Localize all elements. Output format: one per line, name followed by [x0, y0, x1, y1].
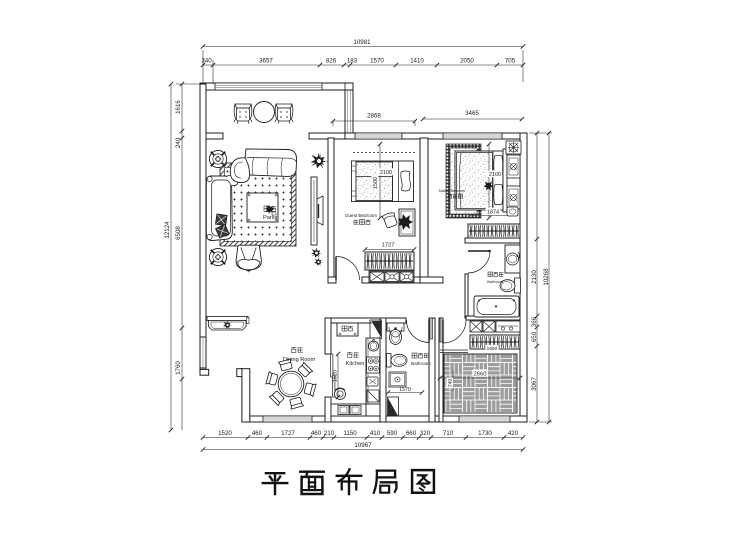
- svg-text:240: 240: [175, 137, 182, 148]
- svg-text:1874: 1874: [487, 210, 499, 216]
- svg-text:650: 650: [531, 331, 538, 342]
- svg-text:10981: 10981: [353, 39, 371, 46]
- svg-text:1500: 1500: [373, 177, 379, 189]
- svg-text:10268: 10268: [543, 268, 550, 286]
- svg-text:420: 420: [508, 430, 519, 437]
- svg-text:1410: 1410: [410, 58, 424, 65]
- svg-text:3067: 3067: [531, 377, 538, 391]
- svg-text:Bathroom: Bathroom: [487, 280, 503, 284]
- svg-text:10967: 10967: [354, 442, 372, 449]
- svg-text:3465: 3465: [465, 110, 479, 117]
- svg-text:Parlor: Parlor: [263, 215, 278, 221]
- svg-text:1660: 1660: [487, 346, 498, 352]
- svg-text:2050: 2050: [460, 58, 474, 65]
- svg-text:12124: 12124: [164, 221, 171, 239]
- svg-text:2868: 2868: [367, 113, 381, 120]
- svg-text:1760: 1760: [175, 361, 182, 375]
- svg-text:826: 826: [326, 58, 337, 65]
- svg-text:Dining Room: Dining Room: [283, 357, 316, 363]
- svg-text:Kitchen: Kitchen: [346, 361, 365, 367]
- svg-text:710: 710: [443, 430, 454, 437]
- svg-text:Bathroom: Bathroom: [411, 361, 431, 366]
- svg-text:2100: 2100: [489, 172, 501, 178]
- svg-text:460: 460: [252, 430, 263, 437]
- svg-text:1520: 1520: [218, 430, 232, 437]
- svg-text:1570: 1570: [399, 387, 411, 393]
- svg-text:320: 320: [420, 430, 431, 437]
- svg-text:6508: 6508: [175, 226, 182, 240]
- svg-text:1727: 1727: [382, 243, 395, 249]
- svg-text:183: 183: [347, 58, 358, 65]
- svg-text:660: 660: [406, 430, 417, 437]
- svg-text:2100: 2100: [380, 170, 392, 176]
- svg-text:1730: 1730: [478, 430, 492, 437]
- svg-text:705: 705: [505, 58, 516, 65]
- svg-text:1616: 1616: [175, 100, 182, 114]
- svg-text:590: 590: [387, 430, 398, 437]
- svg-text:3657: 3657: [259, 58, 273, 65]
- svg-text:2130: 2130: [531, 270, 538, 284]
- svg-text:1150: 1150: [343, 430, 357, 437]
- svg-text:460: 460: [311, 430, 322, 437]
- svg-text:1620: 1620: [333, 370, 339, 382]
- svg-text:410: 410: [370, 430, 381, 437]
- svg-text:1727: 1727: [281, 430, 295, 437]
- svg-text:2660: 2660: [474, 372, 487, 378]
- svg-text:740: 740: [448, 379, 454, 388]
- svg-text:340: 340: [201, 58, 212, 65]
- svg-text:366: 366: [531, 316, 538, 327]
- svg-text:Master Bedroom: Master Bedroom: [439, 189, 466, 193]
- svg-text:Guest Bedroom: Guest Bedroom: [345, 213, 377, 218]
- svg-text:210: 210: [324, 430, 335, 437]
- svg-text:1570: 1570: [370, 58, 384, 65]
